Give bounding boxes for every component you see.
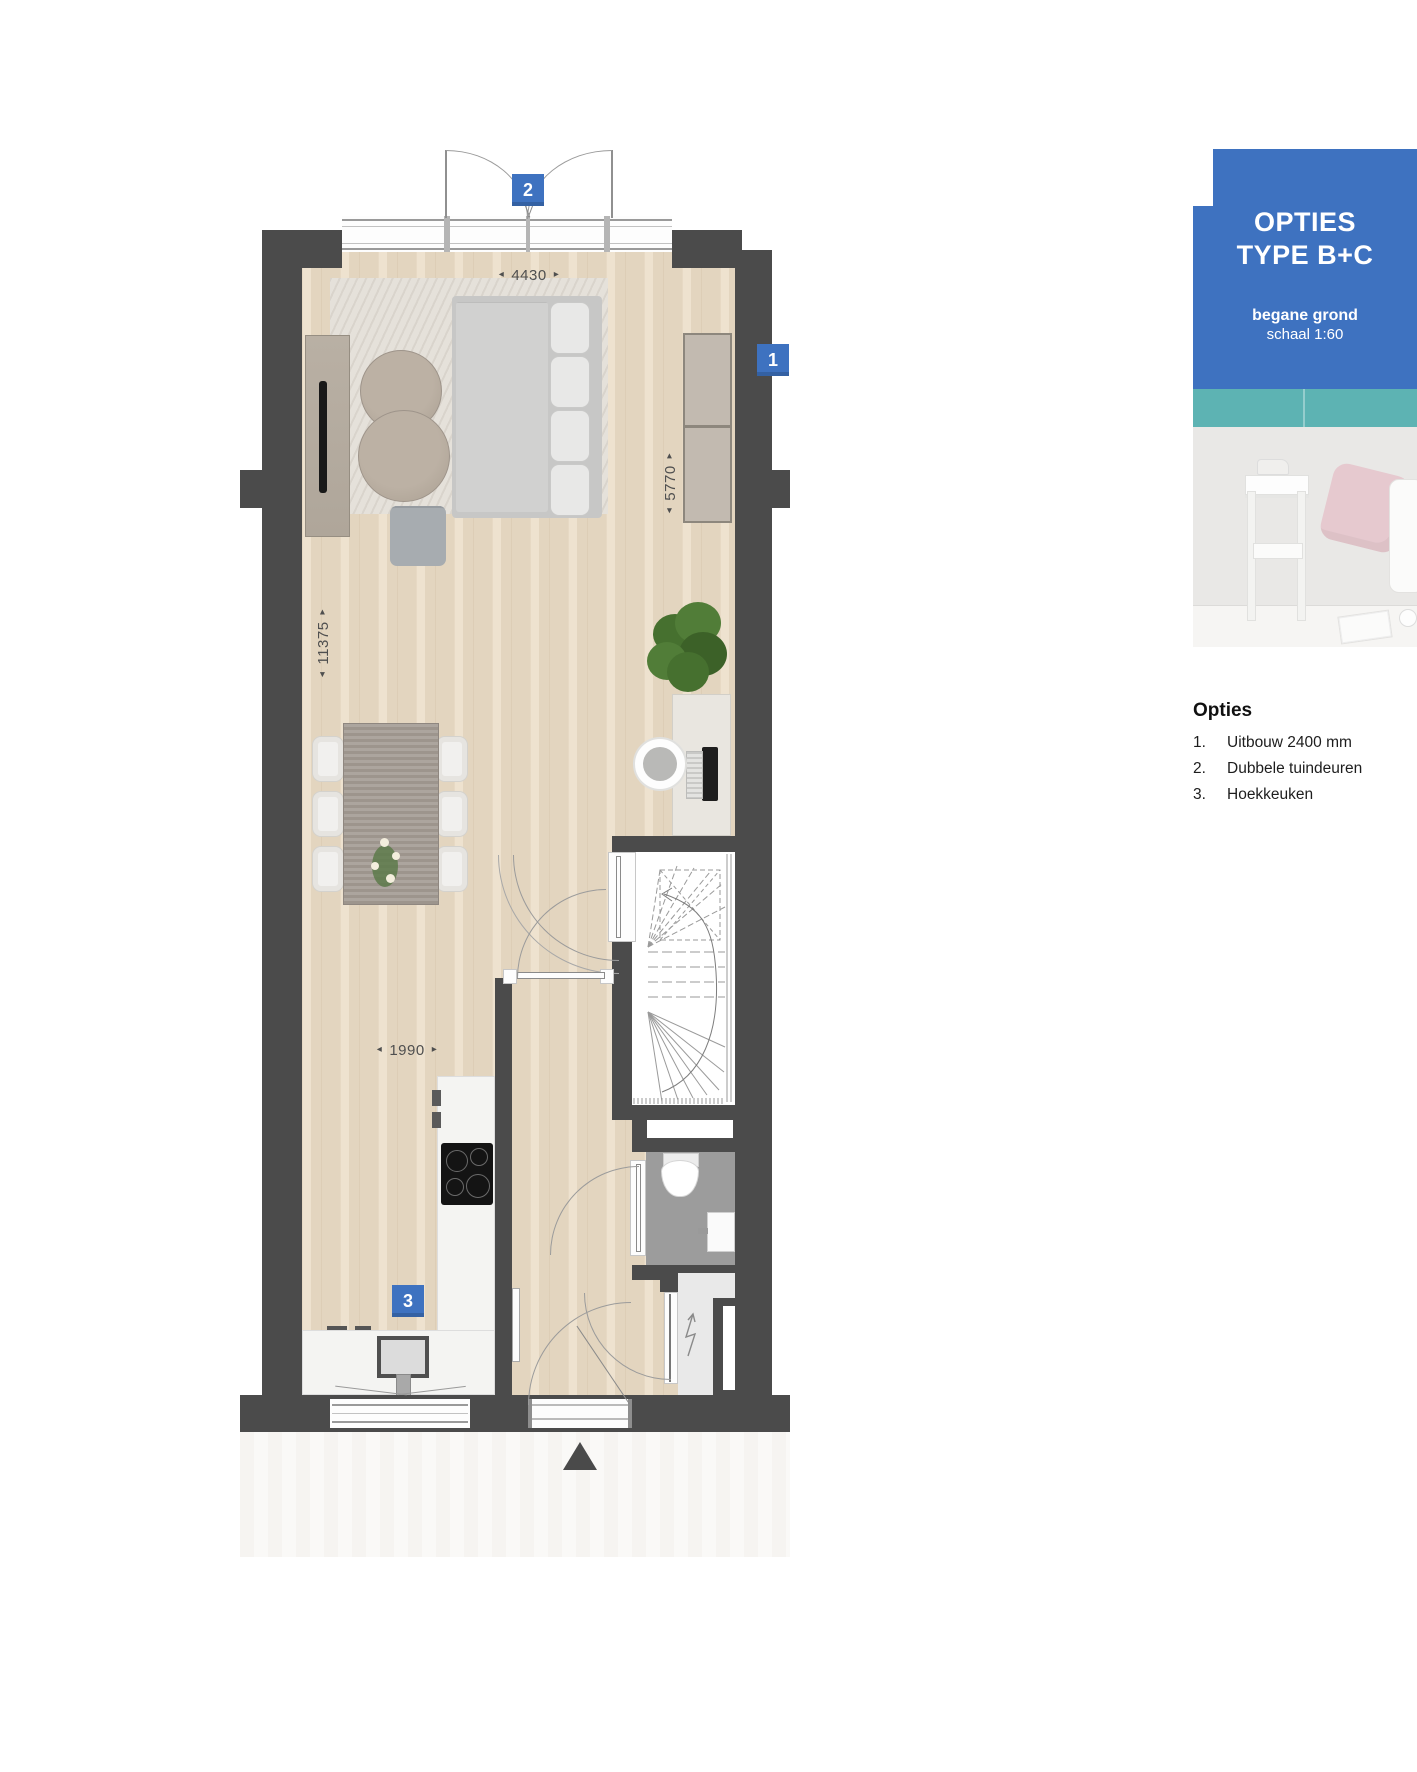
front-door-threshold (530, 1418, 630, 1420)
photo-toy-car (1257, 459, 1289, 475)
storage-cabinet (683, 333, 732, 523)
stair-recess (647, 1120, 733, 1138)
dim-arrow-right: ▸ (432, 1045, 438, 1055)
table-flowers-blossom (371, 862, 379, 870)
option-badge-2: 2 (512, 174, 544, 206)
glazing-frame-line (342, 219, 672, 221)
tv-cabinet (305, 335, 350, 537)
option-badge-1: 1 (757, 344, 789, 376)
dining-chair (436, 736, 468, 782)
dimension-right-height: ◂ 5770 ▸ (658, 423, 682, 543)
cooktop-burner (466, 1174, 490, 1198)
dim-arrow-left: ◂ (318, 672, 328, 678)
sofa-seat (456, 302, 548, 512)
panel-subtitle: begane grond schaal 1:60 (1193, 306, 1417, 344)
dim-value: 11375 (315, 621, 332, 664)
meter-closet-floor (678, 1273, 735, 1300)
wall-bottom (240, 1395, 790, 1432)
washbasin (707, 1212, 735, 1252)
dining-chair (312, 846, 344, 892)
table-flowers-blossom (380, 838, 389, 847)
floorplan-canvas: ◂ 4430 ▸ ◂ 5770 ▸ ◂ 11375 ▸ ◂ 1990 ▸ 2 1… (0, 0, 1417, 1772)
table-flowers-blossom (386, 874, 395, 883)
wall-stairwell-top (612, 836, 735, 852)
sofa-pillow (550, 356, 590, 408)
pouf-large (358, 410, 450, 502)
wall-left-pier (240, 470, 262, 508)
option-badge-3: 3 (392, 1285, 424, 1317)
dining-chair (436, 791, 468, 837)
panel-teal-divider (1303, 389, 1305, 427)
cabinet-handle (327, 1326, 347, 1330)
option-label: Hoekkeuken (1227, 786, 1313, 804)
options-item-3: 3. Hoekkeuken (1193, 786, 1417, 804)
photo-step-stool-step (1253, 543, 1303, 559)
dim-arrow-left: ◂ (665, 508, 675, 514)
top-glazing (342, 216, 672, 252)
dim-arrow-left: ◂ (377, 1045, 383, 1055)
radiator (512, 1288, 520, 1362)
panel-blue-block-notch (1213, 149, 1417, 209)
option-number: 3. (1193, 786, 1227, 804)
window-frame-line (332, 1421, 468, 1423)
laptop-keyboard (686, 751, 703, 799)
sofa-pillow (550, 302, 590, 354)
panel-teal-strip (1193, 389, 1417, 427)
dimension-top-width: ◂ 4430 ▸ (459, 262, 599, 288)
dining-chair (312, 736, 344, 782)
throw-blanket (390, 506, 446, 566)
wall-left (262, 250, 302, 1430)
electric-meter-icon (678, 1310, 704, 1358)
washbasin-faucet (698, 1228, 708, 1234)
desk-chair-seat (643, 747, 677, 781)
panel-title-line2: TYPE B+C (1193, 239, 1417, 272)
wall-under-stairs-left (612, 1105, 632, 1120)
options-item-1: 1. Uitbouw 2400 mm (1193, 734, 1417, 752)
kitchen-tall-faucet (432, 1112, 441, 1128)
wall-meter-closet-stub (660, 1270, 678, 1292)
option-label: Uitbouw 2400 mm (1227, 734, 1352, 752)
meter-closet-niche (723, 1306, 735, 1390)
window-frame-line (332, 1404, 468, 1406)
glazing-frame-line (342, 226, 672, 227)
glazing-frame-line (342, 243, 672, 244)
dim-arrow-right: ▸ (318, 609, 328, 615)
dim-value: 4430 (511, 267, 546, 284)
table-flowers-blossom (392, 852, 400, 860)
plant (645, 600, 727, 695)
dim-value: 5770 (662, 465, 679, 500)
door-jamb (604, 216, 610, 252)
cooktop-burner (446, 1178, 464, 1196)
dimension-kitchen-width: ◂ 1990 ▸ (347, 1038, 467, 1062)
laptop-screen (702, 747, 718, 801)
options-heading: Opties (1193, 700, 1252, 722)
panel-photo (1193, 427, 1417, 647)
panel-scale-label: schaal 1:60 (1193, 325, 1417, 344)
option-number: 1. (1193, 734, 1227, 752)
dim-value: 1990 (389, 1042, 424, 1059)
kitchen-tall-faucet (432, 1090, 441, 1106)
glazing-frame-line (342, 248, 672, 250)
cooktop-burner (470, 1148, 488, 1166)
dining-chair (436, 846, 468, 892)
terrace-exterior (240, 1432, 790, 1557)
dim-arrow-left: ◂ (499, 270, 505, 280)
wall-corner-top-right (672, 230, 742, 268)
storage-cabinet-divider (685, 425, 730, 428)
wall-right-pier (772, 470, 790, 508)
sofa-pillow (550, 410, 590, 462)
hall-door-jamb (503, 969, 517, 984)
tv-icon (319, 381, 327, 493)
panel-floor-label: begane grond (1193, 306, 1417, 325)
entrance-arrow-icon (563, 1442, 597, 1470)
dining-chair (312, 791, 344, 837)
photo-mug (1399, 609, 1417, 627)
panel-title: OPTIES TYPE B+C (1193, 206, 1417, 272)
panel-title-line1: OPTIES (1193, 206, 1417, 239)
dim-arrow-right: ▸ (665, 453, 675, 459)
sofa-pillow (550, 464, 590, 516)
kitchen-sink (377, 1336, 429, 1378)
door-jamb (444, 216, 450, 252)
option-label: Dubbele tuindeuren (1227, 760, 1362, 778)
option-number: 2. (1193, 760, 1227, 778)
cooktop-burner (446, 1150, 468, 1172)
window-frame-line (332, 1413, 468, 1414)
cabinet-handle (355, 1326, 371, 1330)
dimension-left-height: ◂ 11375 ▸ (311, 583, 335, 703)
photo-white-pillow (1389, 479, 1417, 593)
stairs-drawing (632, 852, 735, 1105)
dim-arrow-right: ▸ (554, 270, 560, 280)
door-meeting-stile (526, 216, 530, 252)
options-item-2: 2. Dubbele tuindeuren (1193, 760, 1417, 778)
wall-right (735, 250, 772, 1430)
wall-kitchen-hall (495, 978, 512, 1395)
